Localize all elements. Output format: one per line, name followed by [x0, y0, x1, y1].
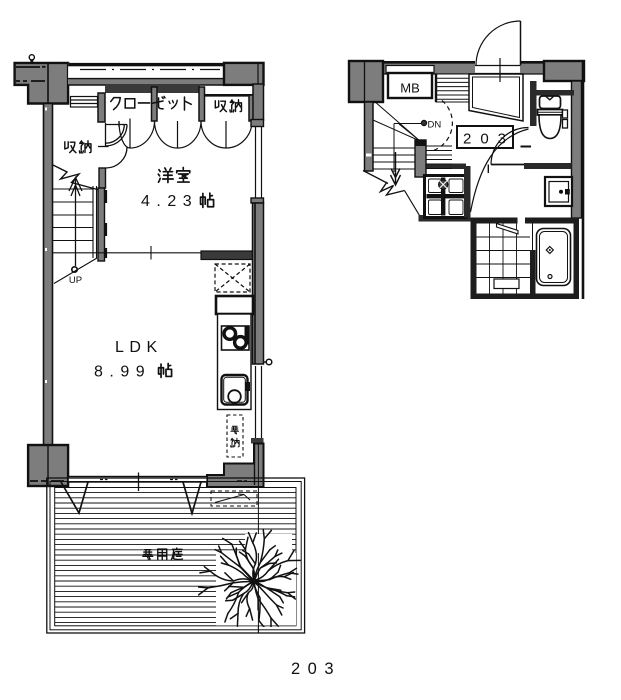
- svg-text:UP: UP: [69, 275, 82, 286]
- svg-text:LDK: LDK: [115, 339, 163, 356]
- svg-text:DN: DN: [428, 120, 442, 131]
- svg-text:8.99: 8.99: [94, 364, 151, 381]
- svg-text:4.23: 4.23: [141, 193, 198, 210]
- svg-text:MB: MB: [400, 81, 420, 96]
- svg-text:203: 203: [291, 660, 341, 678]
